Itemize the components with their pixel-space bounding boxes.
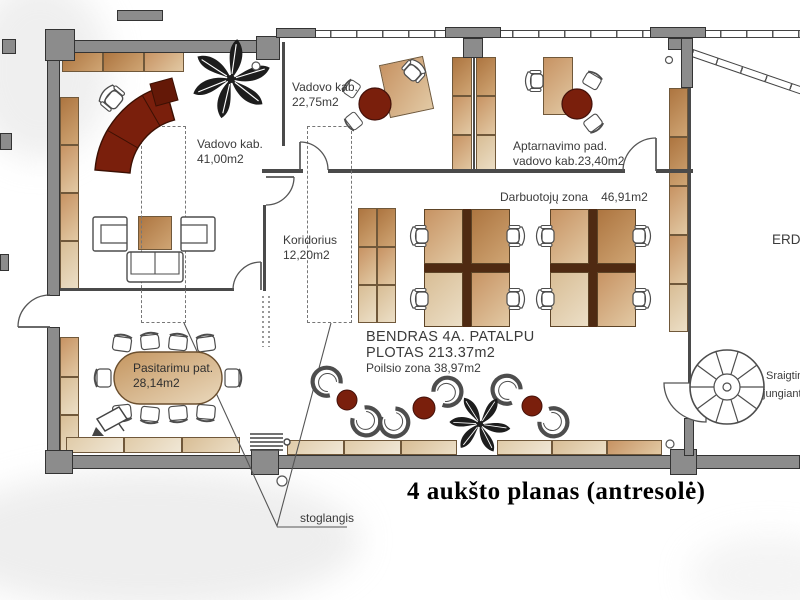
office-chair (507, 289, 525, 310)
room-area: vadovo kab.23,40m2 (513, 154, 624, 169)
office-chair (537, 226, 555, 247)
skylight-leader-lines (184, 323, 347, 527)
armchair (181, 217, 215, 251)
office-chair (411, 289, 429, 310)
detail-circle (252, 62, 260, 70)
page-title: 4 aukšto planas (antresolė) (407, 478, 706, 506)
dotted-opening (263, 296, 269, 347)
summary-label: BENDRAS 4A. PATALPU PLOTAS 213.37m2 (366, 329, 534, 361)
chair (582, 70, 603, 91)
round-table (359, 88, 391, 120)
office-chair (537, 289, 555, 310)
room-label-darbuotoju: Darbuotojų zona 46,91m2 (500, 190, 648, 205)
round-table (562, 89, 592, 119)
room-name: Koridorius (283, 233, 337, 248)
office-chair (96, 82, 127, 113)
office-chair (526, 71, 544, 92)
plant (192, 38, 270, 119)
annotation-stoglangis: stoglangis (300, 511, 354, 526)
room-area: 41,00m2 (197, 152, 263, 167)
armchair (93, 217, 127, 251)
lounge-chair (430, 372, 467, 410)
radiator (250, 434, 290, 450)
spiral-staircase (690, 350, 764, 424)
room-area: 28,14m2 (133, 376, 213, 391)
door-office-small (300, 142, 328, 170)
room-area: 22,75m2 (292, 95, 358, 110)
round-side-table (522, 396, 542, 416)
easel (92, 407, 127, 436)
room-area: 46,91m2 (601, 190, 648, 205)
plan-symbols (0, 0, 800, 600)
door-corridor-hall (233, 262, 261, 290)
room-area: 12,20m2 (283, 248, 337, 263)
lounge-chair (376, 405, 413, 441)
room-label-poilsio: Poilsio zona 38,97m2 (366, 361, 481, 376)
annotation-line: Sraigtin (766, 370, 800, 383)
annotation-line: jungiant (763, 388, 800, 401)
annotation-erdve: ERD (772, 232, 800, 247)
room-label-koridorius: Koridorius 12,20m2 (283, 233, 337, 263)
room-name: Pasitarimu pat. (133, 361, 213, 376)
summary-line2: PLOTAS 213.37m2 (366, 345, 534, 361)
room-label-pasitarimu: Pasitarimu pat. 28,14m2 (133, 361, 213, 391)
door-corridor-office (266, 177, 294, 205)
room-name: Darbuotojų zona (500, 190, 588, 205)
chair (343, 111, 363, 132)
room-label-vadovo-large: Vadovo kab. 41,00m2 (197, 137, 263, 167)
annotation-stairs: Sraigtin jungiant (766, 370, 800, 401)
room-name: Vadovo kab. (292, 80, 358, 95)
room-name: Vadovo kab. (197, 137, 263, 152)
office-chair (411, 226, 429, 247)
detail-circle (666, 57, 673, 64)
detail-circle (277, 476, 287, 486)
detail-circle (666, 440, 674, 448)
door-exterior-left (18, 295, 50, 327)
floor-plan-canvas: Vadovo kab. 22,75m2 Vadovo kab. 41,00m2 … (0, 0, 800, 600)
office-chair (633, 289, 651, 310)
office-chair (633, 226, 651, 247)
office-chair (507, 226, 525, 247)
office-chair (400, 56, 429, 84)
round-side-table (337, 390, 357, 410)
room-name: Aptarnavimo pad. (513, 139, 624, 154)
round-side-table (413, 397, 435, 419)
room-label-vadovo-small: Vadovo kab. 22,75m2 (292, 80, 358, 110)
door-aptarnavimo (623, 138, 656, 171)
sofa (127, 252, 183, 282)
room-label-aptarnavimo: Aptarnavimo pad. vadovo kab.23,40m2 (513, 139, 624, 169)
summary-line1: BENDRAS 4A. PATALPU (366, 329, 534, 345)
